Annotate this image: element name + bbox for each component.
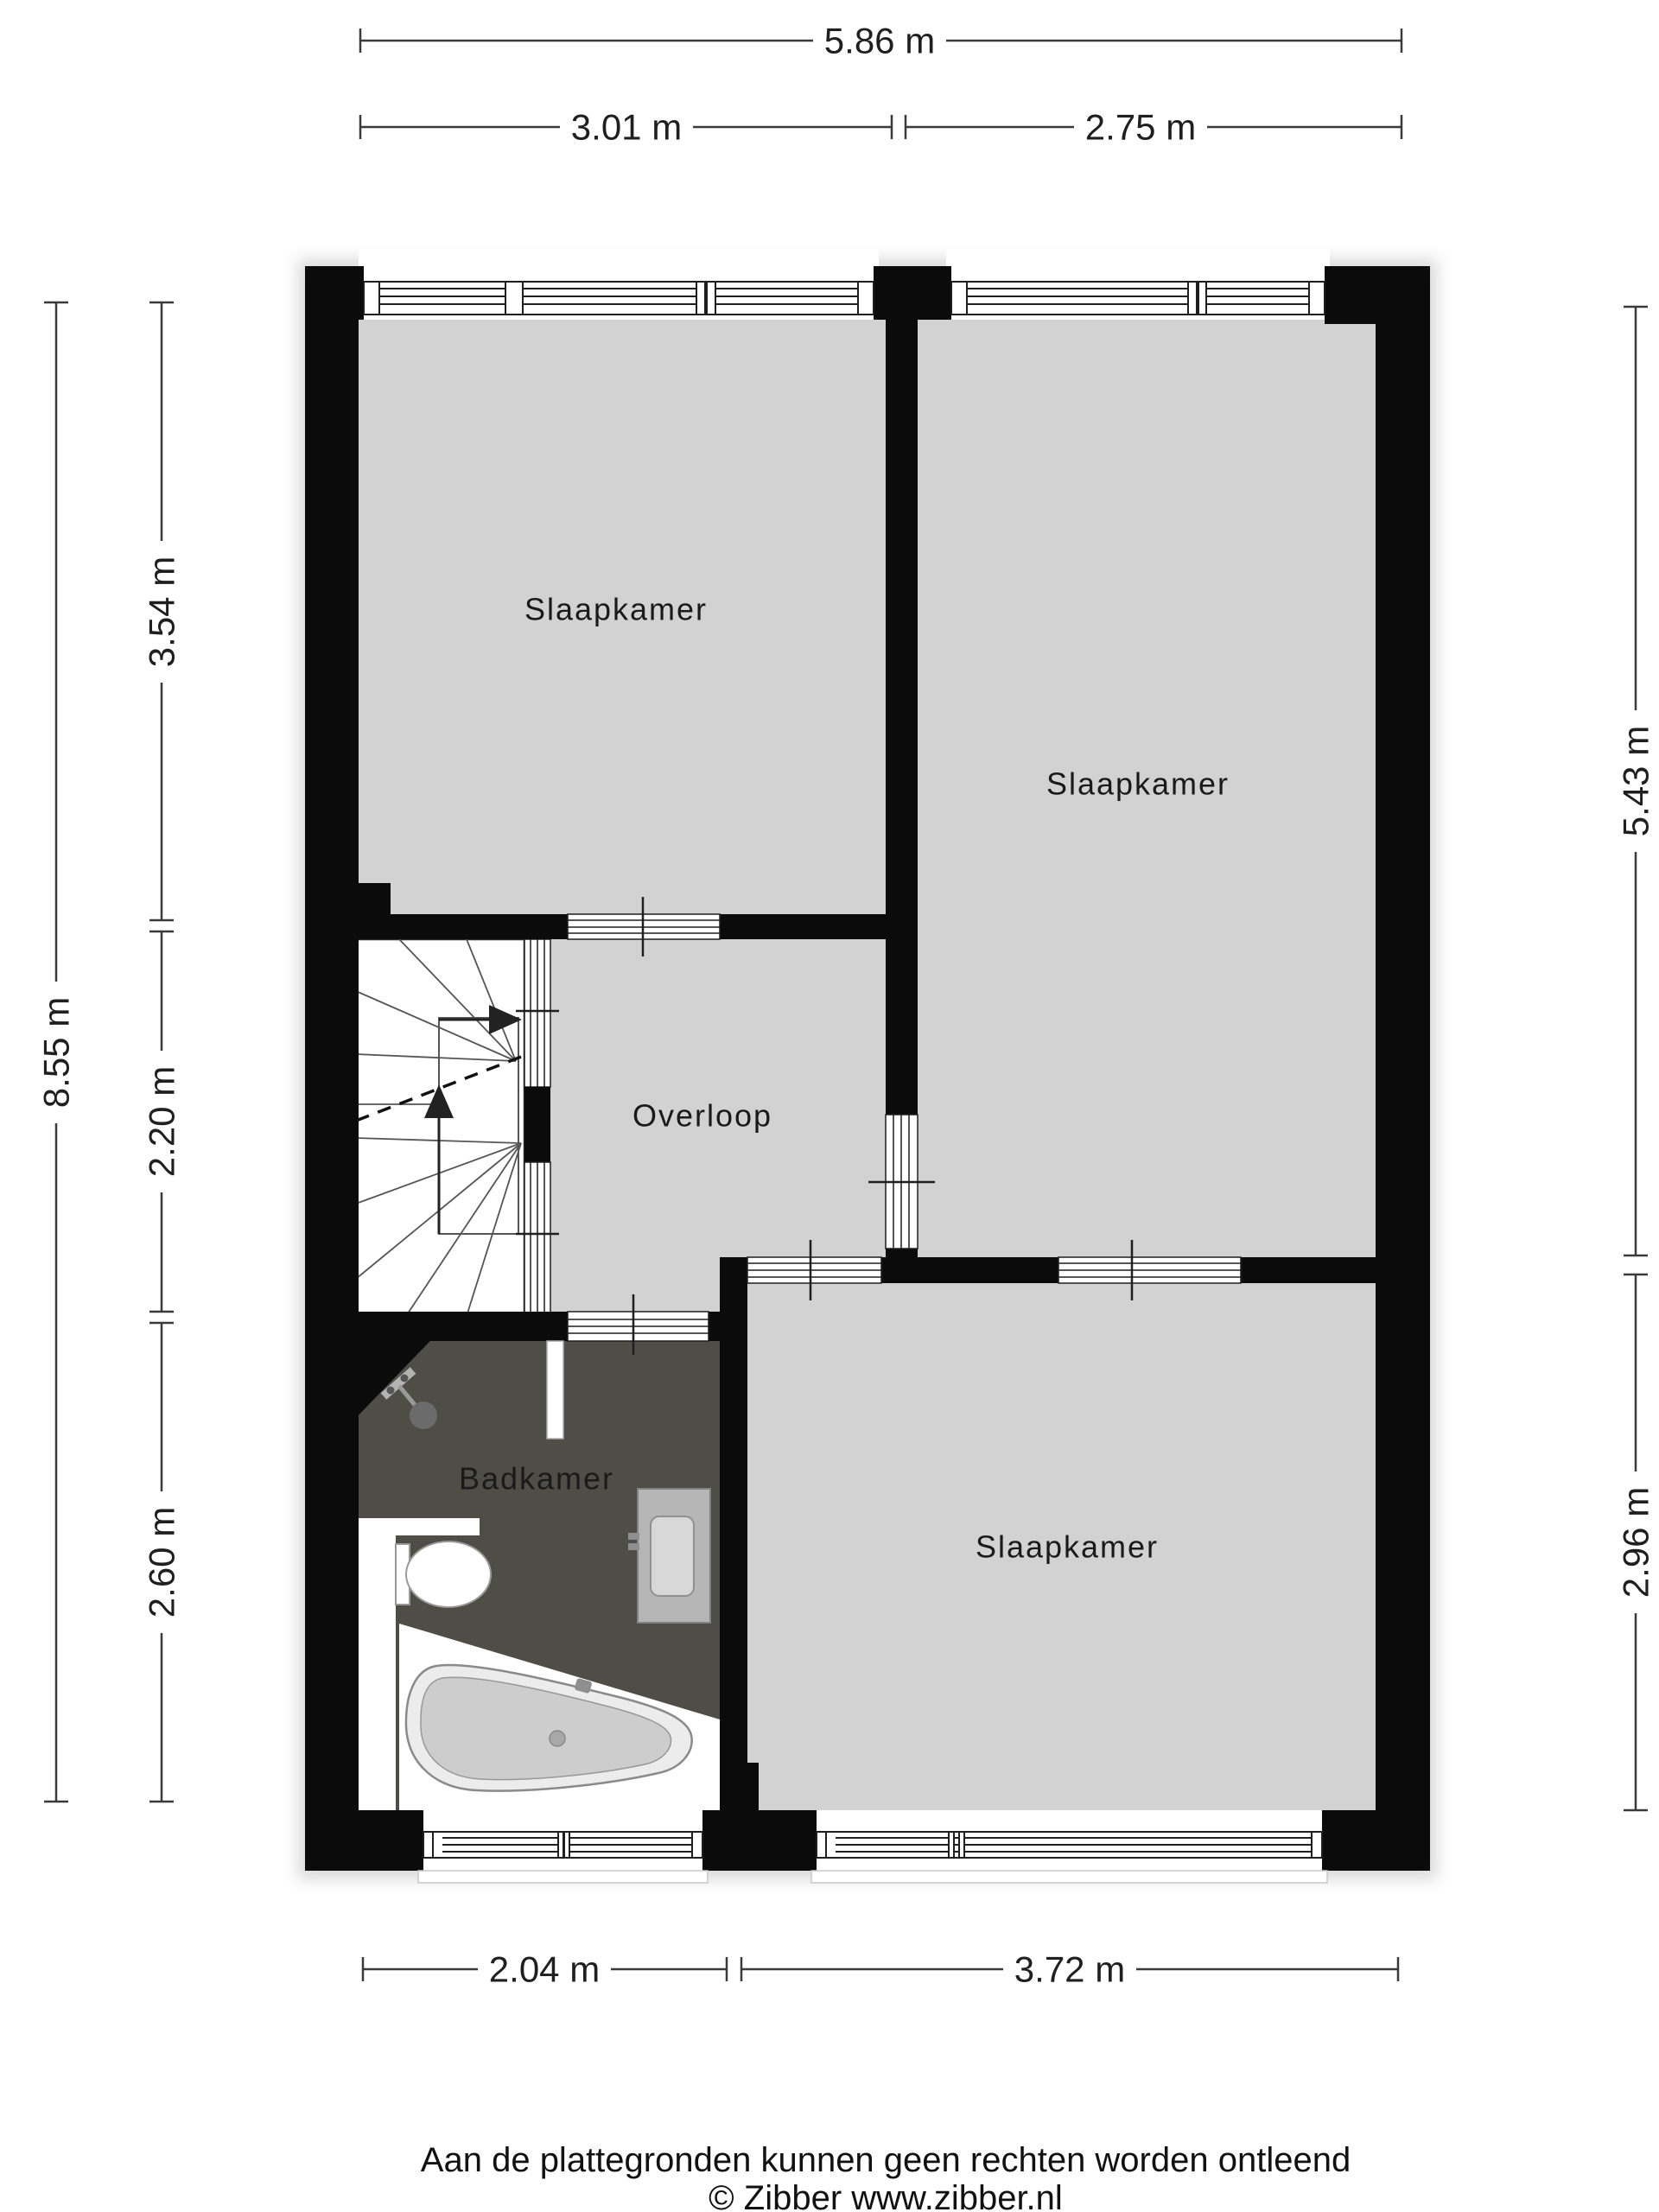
wall-top-right-corner	[1325, 266, 1430, 324]
wall-bathroom-east	[720, 1283, 747, 1810]
wall-top-b	[874, 266, 951, 320]
dim-top-left: 3.01 m	[360, 107, 892, 148]
footer: Aan de plattegronden kunnen geen rechten…	[421, 2141, 1351, 2212]
footer-disclaimer: Aan de plattegronden kunnen geen rechten…	[421, 2141, 1351, 2179]
dim-text-left-middle: 2.20 m	[142, 1066, 182, 1177]
window-top-left	[359, 249, 879, 320]
dim-left-upper: 3.54 m	[142, 302, 182, 920]
wall-bedroom3-north-c	[1241, 1257, 1376, 1283]
label-slaapkamer-top-left: Slaapkamer	[524, 592, 708, 627]
dim-top-total: 5.86 m	[360, 21, 1402, 61]
wall-stair-pier	[359, 883, 391, 939]
wall-bottom-c	[1322, 1810, 1430, 1871]
door-leaf	[547, 1341, 563, 1439]
staircase	[356, 939, 524, 1316]
dim-left-lower: 2.60 m	[142, 1323, 182, 1802]
dim-left-middle: 2.20 m	[142, 931, 182, 1312]
label-slaapkamer-bottom: Slaapkamer	[976, 1529, 1159, 1565]
label-badkamer: Badkamer	[459, 1461, 614, 1497]
wall-bathroom-north-a	[305, 1312, 568, 1341]
wall-bedroom3-north-a	[720, 1257, 747, 1283]
floorplan-canvas: Slaapkamer Slaapkamer Overloop Badkamer …	[0, 0, 1659, 2212]
railing-post	[524, 1087, 550, 1162]
dim-text-right-lower: 2.96 m	[1616, 1487, 1656, 1598]
dim-text-left-upper: 3.54 m	[142, 556, 182, 667]
wall-bathroom-north-b	[709, 1312, 720, 1341]
dim-right-lower: 2.96 m	[1616, 1274, 1656, 1810]
wall-bottom-a	[305, 1810, 423, 1871]
dim-text-left-lower: 2.60 m	[142, 1507, 182, 1618]
dim-text-left-total: 8.55 m	[36, 997, 77, 1108]
dim-text-right-upper: 5.43 m	[1616, 726, 1656, 836]
dim-text-bottom-right: 3.72 m	[1014, 1949, 1125, 1990]
dim-text-top-right: 2.75 m	[1085, 107, 1196, 148]
footer-copyright: © Zibber www.zibber.nl	[709, 2179, 1063, 2212]
wall-left	[305, 266, 359, 1871]
sink-icon	[628, 1489, 710, 1623]
wall-bedroom3-north-b	[881, 1257, 1058, 1283]
label-slaapkamer-top-right: Slaapkamer	[1046, 766, 1230, 802]
dim-right-upper: 5.43 m	[1616, 307, 1656, 1255]
dim-text-bottom-left: 2.04 m	[489, 1949, 600, 1990]
window-bottom-right	[811, 1810, 1327, 1883]
dim-bottom-right: 3.72 m	[741, 1949, 1398, 1990]
wall-bottom-b	[702, 1810, 817, 1871]
window-top-right	[946, 249, 1330, 320]
dim-bottom-left: 2.04 m	[363, 1949, 727, 1990]
window-bottom-left	[418, 1810, 708, 1883]
dim-text-top-left: 3.01 m	[571, 107, 682, 148]
label-overloop: Overloop	[632, 1098, 772, 1134]
wall-bathroom-east-stub	[720, 1763, 759, 1810]
dim-left-total: 8.55 m	[36, 302, 77, 1802]
dim-top-right: 2.75 m	[906, 107, 1402, 148]
wall-bedroom2-west-a	[886, 320, 918, 1115]
dim-text-top-total: 5.86 m	[824, 21, 935, 61]
wall-right	[1376, 320, 1430, 1871]
bathtub-drain	[550, 1731, 565, 1746]
